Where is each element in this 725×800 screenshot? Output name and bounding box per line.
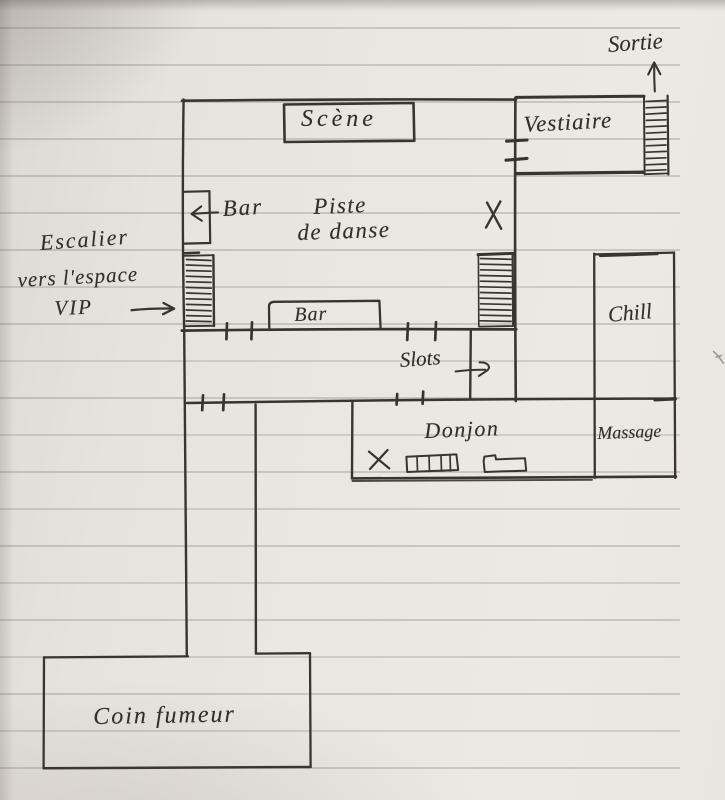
exit-stairs: [644, 96, 668, 175]
bar-top-arrow-icon: [192, 206, 218, 220]
slots-arrow-icon: [456, 362, 489, 376]
label-donjon: Donjon: [424, 416, 500, 442]
slots-room-wall: [470, 330, 471, 398]
label-exit: Sortie: [607, 29, 664, 57]
stray-pen-mark: [714, 352, 724, 364]
label-bar-top: Bar: [222, 195, 264, 221]
cage-icon: [406, 454, 458, 472]
bed-icon: [484, 455, 527, 472]
label-chill: Chill: [607, 299, 653, 326]
dance-floor-right-stairs: [478, 253, 513, 326]
label-vip-note-line3: VIP: [54, 296, 93, 319]
x-mark-dance-floor: [486, 201, 501, 228]
label-vip-note-line1: Escalier: [39, 225, 130, 254]
vip-arrow-icon: [132, 303, 175, 314]
hall-dividing-wall: [187, 399, 674, 403]
notebook-floor-plan-photo: Sortie Scène Vestiaire Bar Piste de dans…: [0, 0, 725, 800]
label-bar-bottom: Bar: [294, 304, 328, 326]
label-smoking-corner: Coin fumeur: [93, 703, 236, 731]
label-stage: Scène: [301, 107, 377, 132]
bar-top-box: [183, 191, 210, 253]
label-dance-floor-line1: Piste: [313, 193, 367, 219]
label-massage: Massage: [597, 422, 662, 443]
label-cloakroom: Vestiaire: [523, 108, 613, 137]
exit-arrow-icon: [648, 63, 660, 92]
corridor-walls: [184, 331, 256, 656]
vip-stairs: [184, 255, 214, 326]
main-room-walls: [182, 98, 516, 401]
chill-massage-walls: [594, 252, 675, 478]
x-mark-donjon: [369, 450, 389, 469]
label-slots: Slots: [399, 346, 441, 371]
label-dance-floor-line2: de danse: [297, 218, 391, 245]
